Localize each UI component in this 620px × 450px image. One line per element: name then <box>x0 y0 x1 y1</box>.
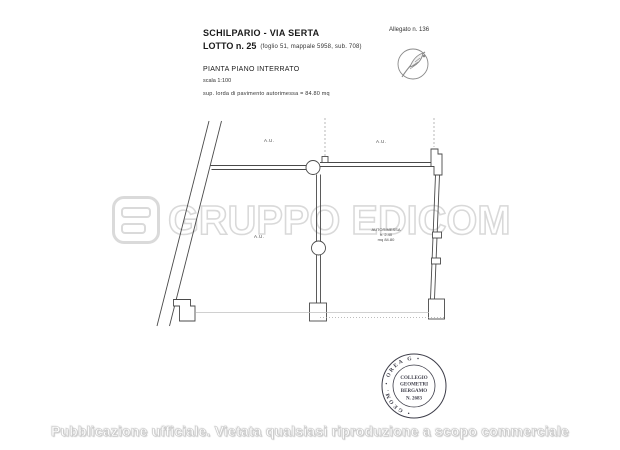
pillar-right-bottom <box>429 299 445 319</box>
publication-notice: Pubblicazione ufficiale. Vietata qualsia… <box>0 423 620 439</box>
area-label-au-3: A.U. <box>254 234 264 239</box>
stamp-line-4: N. 2683 <box>406 397 423 402</box>
pillar-center-bottom <box>310 303 327 321</box>
cadastral-details: (foglio 51, mappale 5958, sub. 708) <box>260 44 361 50</box>
location-title: SCHILPARIO - VIA SERTA <box>203 28 319 38</box>
stamp-line-2: GEOMETRI <box>400 383 428 388</box>
quill-icon <box>398 49 428 79</box>
stamp-line-3: BERGAMO <box>401 389 428 394</box>
scale-note: scala 1:100 <box>203 78 231 84</box>
room-label-line-3: mq 84.80 <box>356 237 416 242</box>
edicom-logo-icon <box>112 196 160 244</box>
lot-number: LOTTO n. 25 <box>203 41 256 51</box>
area-label-au-1: A.U. <box>264 138 274 143</box>
stamp-ring-text: • GEOM. • OREA G • <box>384 356 421 416</box>
svg-text:• GEOM. • OREA G •: • GEOM. • OREA G • <box>384 356 421 416</box>
document-page: { "header": { "location": "SCHILPARIO - … <box>0 0 620 450</box>
lot-line: LOTTO n. 25(foglio 51, mappale 5958, sub… <box>203 41 362 51</box>
logo-bar <box>121 223 146 234</box>
pillar-left-bottom <box>174 300 196 322</box>
watermark-text: GRUPPO EDICOM <box>168 197 511 244</box>
stamp-line-1: COLLEGIO <box>400 376 427 381</box>
allegato-number: Allegato n. 136 <box>389 27 429 33</box>
logo-bar <box>121 207 151 218</box>
gruppo-edicom-watermark: GRUPPO EDICOM <box>112 196 521 244</box>
geometra-stamp: • GEOM. • OREA G • COLLEGIO GEOMETRI BER… <box>382 354 446 418</box>
column-circle-top <box>306 161 320 175</box>
area-label-au-2: A.U. <box>376 139 386 144</box>
room-label-autorimessa: AUTORIMESSA h. 2.40 mq 84.80 <box>356 227 416 242</box>
surface-note: sup. lorda di pavimento autorimessa = 84… <box>203 91 330 97</box>
plan-title: PIANTA PIANO INTERRATO <box>203 66 299 73</box>
corner-pillar-top-right <box>431 149 442 175</box>
